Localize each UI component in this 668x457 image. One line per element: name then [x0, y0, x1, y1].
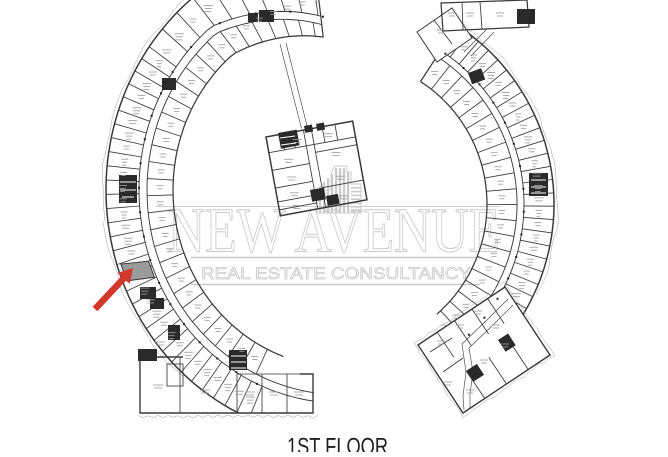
svg-text:1ST FLOOR: 1ST FLOOR	[287, 434, 388, 453]
svg-text:REAL ESTATE CONSULTANCY: REAL ESTATE CONSULTANCY	[201, 265, 471, 283]
